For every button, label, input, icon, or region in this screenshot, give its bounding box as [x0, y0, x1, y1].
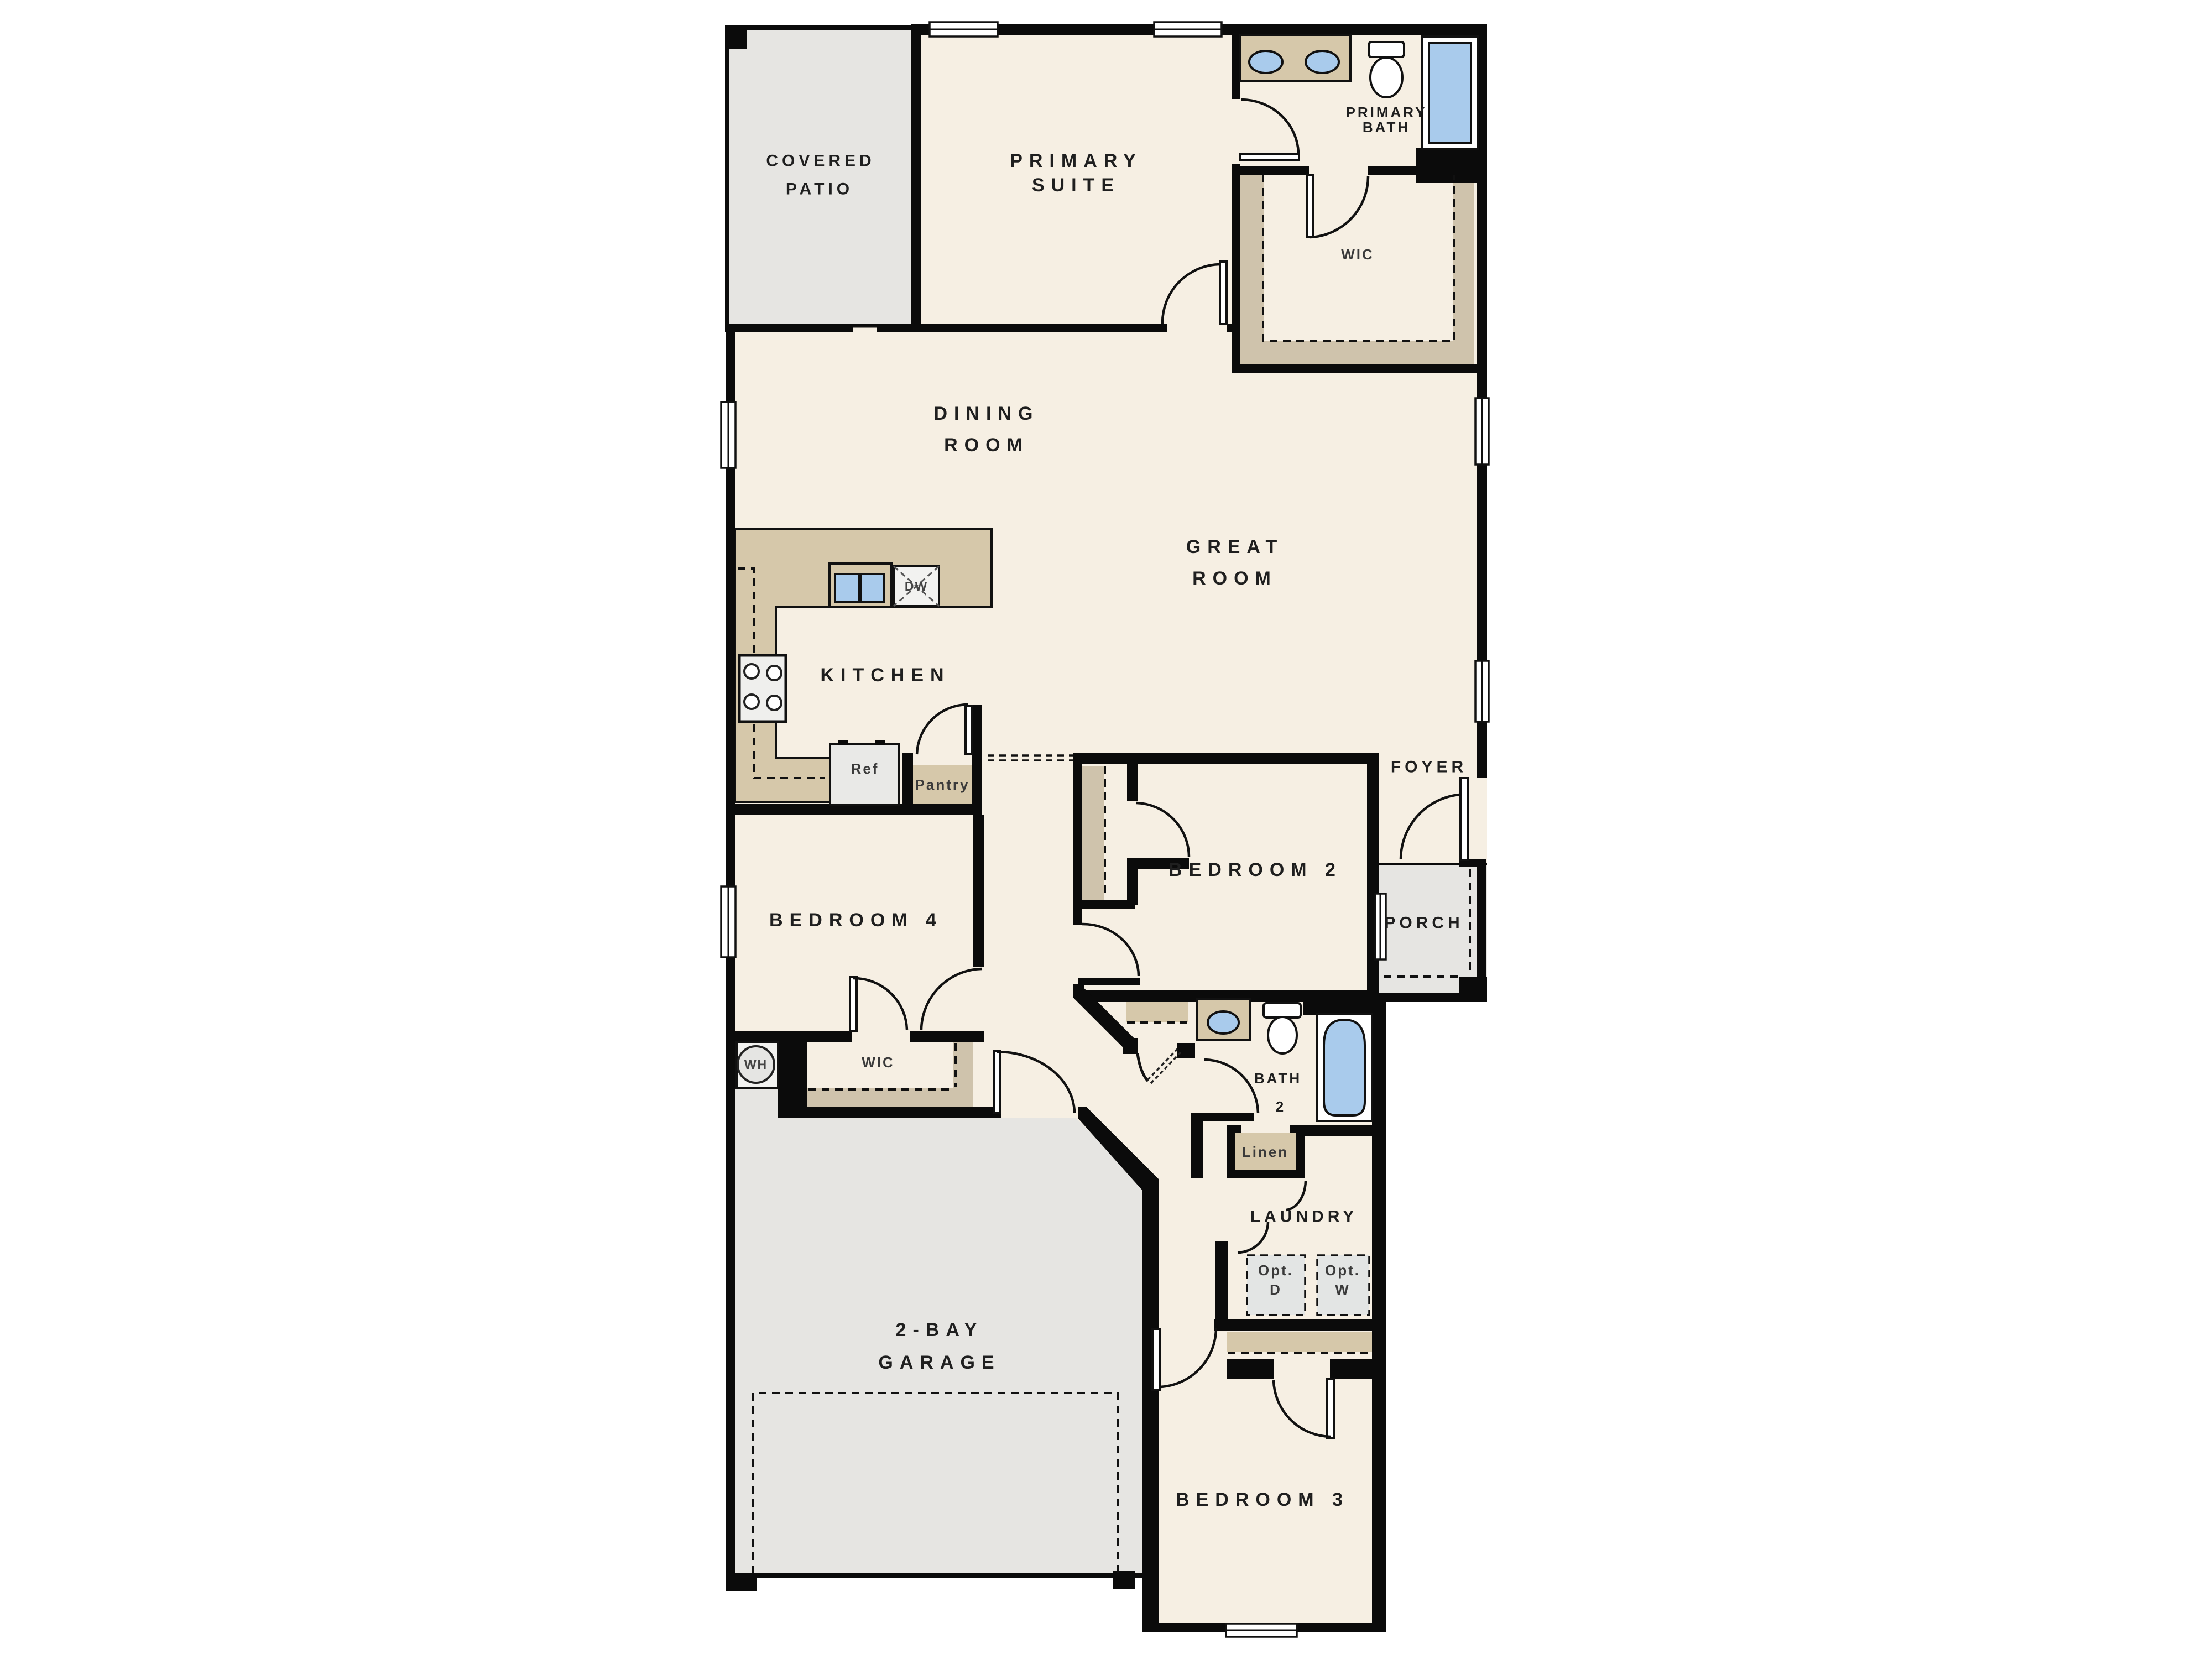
svg-text:2-BAY: 2-BAY	[896, 1319, 984, 1340]
svg-text:GREAT: GREAT	[1186, 536, 1284, 557]
svg-text:ROOM: ROOM	[1192, 568, 1277, 589]
svg-text:2: 2	[1276, 1098, 1286, 1115]
svg-text:DW: DW	[905, 579, 928, 593]
svg-text:Linen: Linen	[1242, 1144, 1288, 1160]
svg-text:FOYER: FOYER	[1391, 758, 1467, 776]
svg-text:BEDROOM 2: BEDROOM 2	[1168, 859, 1342, 880]
svg-text:KITCHEN: KITCHEN	[820, 665, 950, 686]
svg-text:W: W	[1335, 1281, 1350, 1298]
svg-text:PORCH: PORCH	[1384, 914, 1463, 932]
svg-text:WIC: WIC	[862, 1054, 895, 1071]
svg-text:WIC: WIC	[1341, 246, 1374, 263]
svg-text:PRIMARY: PRIMARY	[1010, 150, 1142, 171]
svg-text:D: D	[1270, 1281, 1282, 1298]
svg-text:WH: WH	[744, 1057, 768, 1072]
svg-text:PRIMARY: PRIMARY	[1346, 104, 1427, 121]
svg-text:COVERED: COVERED	[766, 152, 875, 170]
svg-text:Opt.: Opt.	[1325, 1262, 1360, 1279]
svg-text:PATIO: PATIO	[786, 180, 853, 199]
svg-text:Opt.: Opt.	[1258, 1262, 1293, 1279]
svg-text:Ref: Ref	[851, 760, 879, 777]
svg-text:DINING: DINING	[934, 403, 1040, 424]
svg-text:GARAGE: GARAGE	[878, 1352, 1000, 1373]
svg-text:ROOM: ROOM	[944, 435, 1029, 456]
svg-text:LAUNDRY: LAUNDRY	[1250, 1208, 1358, 1226]
svg-text:SUITE: SUITE	[1032, 175, 1120, 196]
svg-text:BEDROOM 4: BEDROOM 4	[769, 910, 943, 931]
svg-text:BATH: BATH	[1254, 1070, 1302, 1087]
svg-text:BEDROOM 3: BEDROOM 3	[1176, 1489, 1349, 1510]
svg-text:Pantry: Pantry	[915, 776, 970, 793]
svg-text:BATH: BATH	[1363, 119, 1410, 135]
